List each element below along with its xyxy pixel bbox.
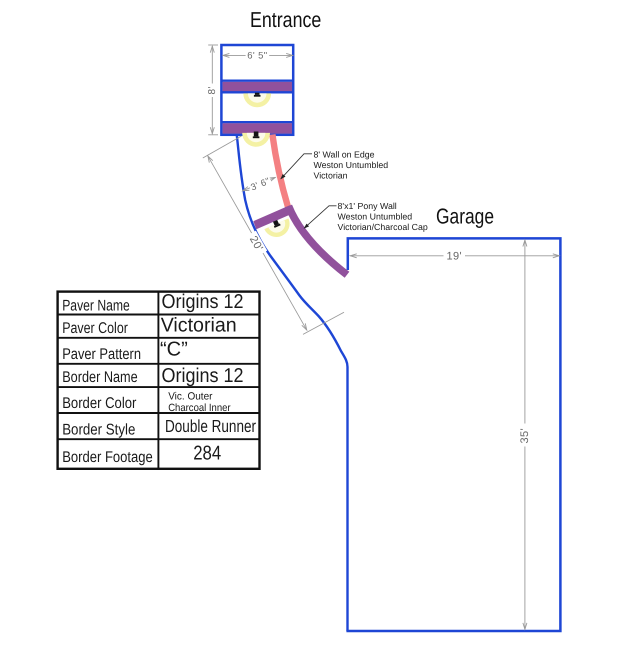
svg-text:Paver Color: Paver Color <box>62 320 128 337</box>
svg-text:8' Wall on Edge: 8' Wall on Edge <box>314 149 375 159</box>
svg-text:Origins 12: Origins 12 <box>162 291 244 313</box>
svg-text:8': 8' <box>207 86 218 94</box>
svg-text:Double Runner: Double Runner <box>165 416 256 436</box>
svg-text:Origins 12: Origins 12 <box>162 365 244 387</box>
svg-text:Garage: Garage <box>436 203 494 228</box>
svg-text:Weston Untumbled: Weston Untumbled <box>338 211 413 221</box>
svg-text:Victorian/Charcoal Cap: Victorian/Charcoal Cap <box>338 222 428 232</box>
svg-text:8'x1' Pony Wall: 8'x1' Pony Wall <box>338 201 397 211</box>
svg-text:Paver Pattern: Paver Pattern <box>62 346 141 363</box>
svg-text:Vic. Outer: Vic. Outer <box>168 391 213 403</box>
svg-text:284: 284 <box>193 443 221 465</box>
svg-text:Victorian: Victorian <box>161 315 237 337</box>
svg-text:35': 35' <box>519 428 531 444</box>
svg-text:Border Style: Border Style <box>62 421 135 438</box>
svg-text:Entrance: Entrance <box>250 7 321 32</box>
svg-text:Victorian: Victorian <box>314 170 348 180</box>
svg-text:Weston Untumbled: Weston Untumbled <box>314 160 389 170</box>
svg-text:“C”: “C” <box>160 339 188 361</box>
svg-text:6' 5": 6' 5" <box>247 50 267 61</box>
svg-text:Border Footage: Border Footage <box>62 449 153 466</box>
svg-text:Charcoal Inner: Charcoal Inner <box>168 402 231 414</box>
svg-text:Border Name: Border Name <box>62 369 138 386</box>
svg-text:Border Color: Border Color <box>62 395 136 412</box>
svg-text:19': 19' <box>447 251 463 263</box>
svg-text:Paver Name: Paver Name <box>62 297 130 314</box>
